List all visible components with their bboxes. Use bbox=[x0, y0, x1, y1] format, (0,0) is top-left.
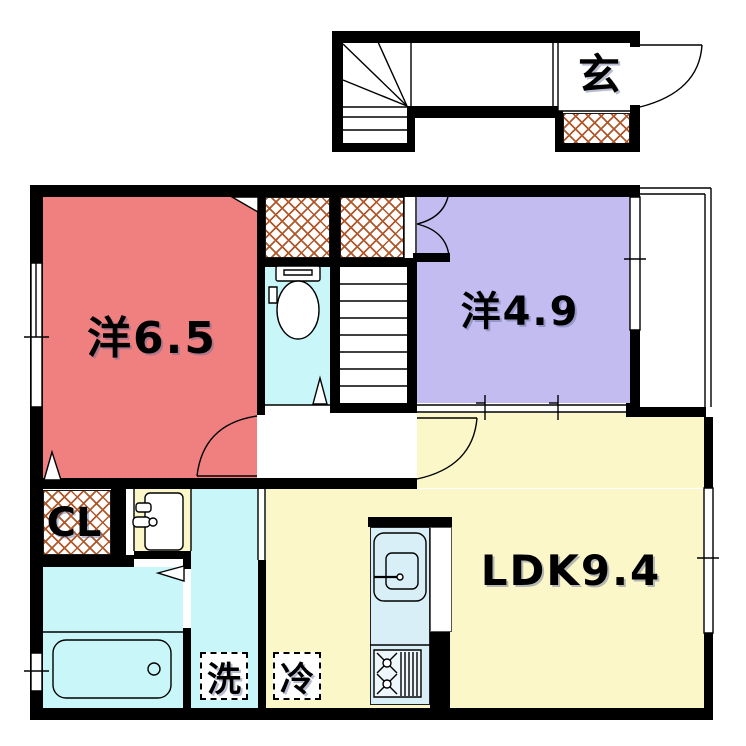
refrigerator-box: 冷 bbox=[273, 652, 321, 700]
sliding-door-partition bbox=[417, 395, 630, 420]
window-marks bbox=[24, 197, 719, 691]
vanity-fixture bbox=[133, 493, 183, 550]
label-closet: CL bbox=[47, 503, 102, 543]
staircase-1f bbox=[343, 42, 411, 130]
ldk-door bbox=[417, 418, 477, 479]
toilet-fixture bbox=[269, 266, 320, 339]
label-washing-machine: 洗 bbox=[207, 652, 241, 701]
closet-double-door bbox=[404, 191, 449, 258]
linework-layer bbox=[0, 0, 746, 746]
label-refrigerator: 冷 bbox=[280, 652, 314, 701]
entrance-door bbox=[640, 45, 702, 107]
bathtub bbox=[43, 632, 183, 698]
stove bbox=[374, 650, 421, 697]
label-ldk: LDK9.4 bbox=[481, 550, 662, 592]
balcony-outline bbox=[640, 188, 711, 407]
label-western-4-9: 洋4.9 bbox=[461, 292, 580, 332]
staircase-2f bbox=[340, 284, 407, 386]
label-entrance: 玄 bbox=[578, 54, 622, 96]
floor-plan: 玄 洋6.5 洋4.9 LDK9.4 CL 洗 冷 bbox=[0, 0, 746, 746]
label-western-6-5: 洋6.5 bbox=[87, 317, 217, 361]
west-room-door bbox=[197, 416, 257, 476]
kitchen-sink bbox=[370, 533, 430, 645]
washing-machine-box: 洗 bbox=[200, 652, 248, 700]
